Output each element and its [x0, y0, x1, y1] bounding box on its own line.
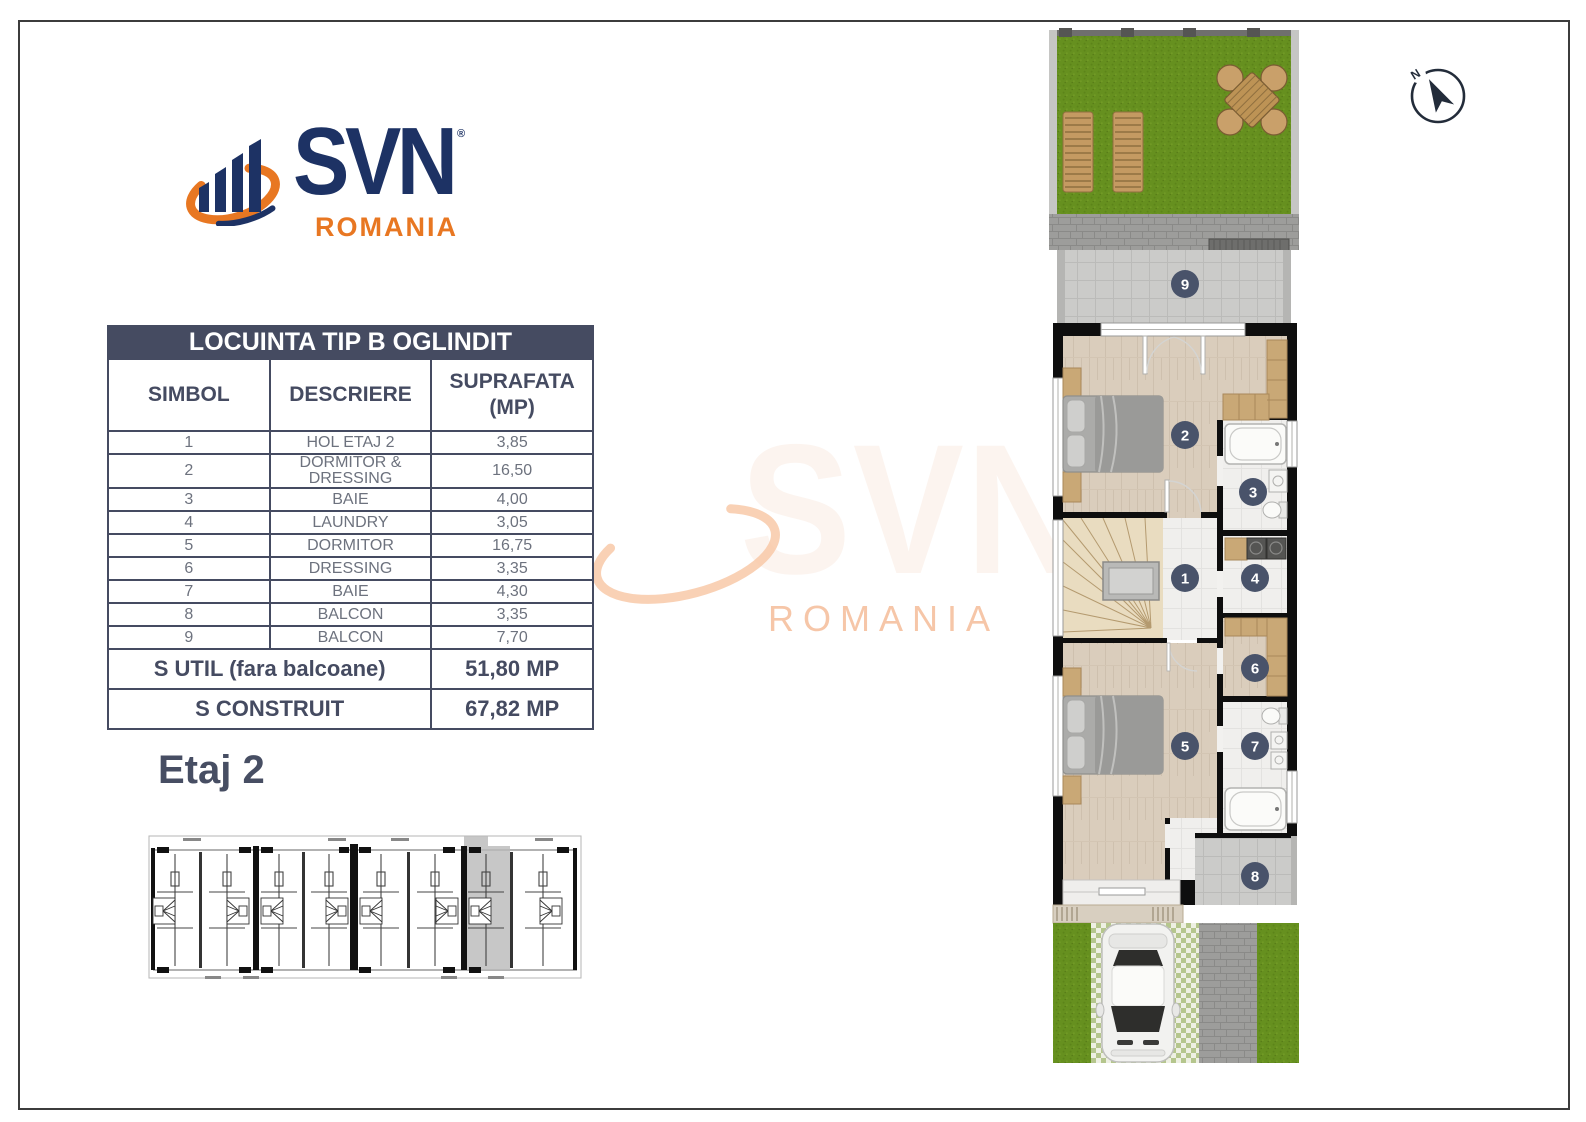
column-header-descriere: DESCRIERE [270, 359, 432, 431]
cell-simbol: 7 [108, 580, 270, 603]
total-util-value: 51,80 MP [431, 649, 593, 689]
cell-descriere: DORMITOR [270, 534, 432, 557]
cell-simbol: 9 [108, 626, 270, 649]
cell-simbol: 4 [108, 511, 270, 534]
cell-descriere: BALCON [270, 626, 432, 649]
cell-suprafata: 16,75 [431, 534, 593, 557]
column-header-suprafata-line2: (MP) [432, 395, 592, 421]
cell-suprafata: 7,70 [431, 626, 593, 649]
area-table: LOCUINTA TIP B OGLINDIT SIMBOL DESCRIERE… [107, 325, 594, 730]
cell-suprafata: 4,30 [431, 580, 593, 603]
staircase [1063, 518, 1163, 640]
cell-descriere: DRESSING [270, 557, 432, 580]
entrance [1063, 880, 1180, 905]
room-label-text: 8 [1251, 869, 1259, 886]
total-util-label: S UTIL (fara balcoane) [108, 649, 431, 689]
svn-logo-mark-icon [185, 116, 305, 226]
building-overview-plan [143, 820, 587, 992]
sun-lounger [1113, 112, 1143, 192]
table-header-row: SIMBOL DESCRIERE SUPRAFATA (MP) [108, 359, 593, 431]
cell-simbol: 3 [108, 488, 270, 511]
cell-descriere: DORMITOR & DRESSING [270, 454, 432, 488]
room-label-9: 9 [1171, 270, 1199, 298]
cell-descriere: BAIE [270, 580, 432, 603]
room-label-4: 4 [1241, 564, 1269, 592]
cell-suprafata: 3,05 [431, 511, 593, 534]
room-label-2: 2 [1171, 421, 1199, 449]
room-label-5: 5 [1171, 732, 1199, 760]
compass-arrow [1421, 74, 1454, 113]
logo-brand-text: SVN [293, 114, 454, 210]
room-label-6: 6 [1241, 654, 1269, 682]
room-label-1: 1 [1171, 564, 1199, 592]
cell-simbol: 2 [108, 454, 270, 488]
cell-simbol: 8 [108, 603, 270, 626]
table-title: LOCUINTA TIP B OGLINDIT [108, 326, 593, 359]
table-row: 4 LAUNDRY 3,05 [108, 511, 593, 534]
cell-descriere: BALCON [270, 603, 432, 626]
cell-descriere: LAUNDRY [270, 511, 432, 534]
svn-romania-logo: SVN ® ROMANIA [185, 112, 485, 252]
table-row: 2 DORMITOR & DRESSING 16,50 [108, 454, 593, 488]
table-row: 9 BALCON 7,70 [108, 626, 593, 649]
logo-region-text: ROMANIA [315, 212, 458, 243]
cell-simbol: 1 [108, 431, 270, 454]
car [1096, 924, 1180, 1062]
laundry-4-fixtures [1225, 538, 1286, 560]
north-compass-icon: N [1398, 52, 1474, 132]
room-label-text: 5 [1181, 739, 1189, 756]
cell-suprafata: 3,35 [431, 557, 593, 580]
cell-simbol: 6 [108, 557, 270, 580]
room-label-text: 4 [1251, 571, 1260, 588]
table-row: 1 HOL ETAJ 2 3,85 [108, 431, 593, 454]
total-construit-label: S CONSTRUIT [108, 689, 431, 729]
room-label-3: 3 [1239, 478, 1267, 506]
table-row: 6 DRESSING 3,35 [108, 557, 593, 580]
total-row-util: S UTIL (fara balcoane) 51,80 MP [108, 649, 593, 689]
column-header-suprafata-line1: SUPRAFATA [432, 369, 592, 395]
total-row-construit: S CONSTRUIT 67,82 MP [108, 689, 593, 729]
registered-mark: ® [457, 128, 465, 140]
cell-simbol: 5 [108, 534, 270, 557]
column-header-simbol: SIMBOL [108, 359, 270, 431]
cell-suprafata: 3,85 [431, 431, 593, 454]
room-label-text: 6 [1251, 661, 1259, 678]
column-header-suprafata: SUPRAFATA (MP) [431, 359, 593, 431]
floor-label: Etaj 2 [158, 748, 265, 793]
room-label-text: 9 [1181, 277, 1189, 294]
table-title-row: LOCUINTA TIP B OGLINDIT [108, 326, 593, 359]
room-label-8: 8 [1241, 862, 1269, 890]
table-row: 8 BALCON 3,35 [108, 603, 593, 626]
cell-descriere: HOL ETAJ 2 [270, 431, 432, 454]
table-row: 5 DORMITOR 16,75 [108, 534, 593, 557]
room-label-text: 2 [1181, 428, 1189, 445]
room-label-text: 3 [1249, 485, 1257, 502]
driveway [1053, 923, 1299, 1063]
porch [1053, 905, 1183, 923]
room-label-text: 1 [1181, 571, 1189, 588]
table-row: 3 BAIE 4,00 [108, 488, 593, 511]
room-label-7: 7 [1241, 732, 1269, 760]
table-row: 7 BAIE 4,30 [108, 580, 593, 603]
sun-lounger [1063, 112, 1093, 192]
cell-suprafata: 4,00 [431, 488, 593, 511]
room-label-text: 7 [1251, 739, 1259, 756]
total-construit-value: 67,82 MP [431, 689, 593, 729]
cell-suprafata: 3,35 [431, 603, 593, 626]
terrace-table-set [1217, 65, 1287, 135]
cell-descriere: BAIE [270, 488, 432, 511]
floor-plan: 9 2 3 1 4 6 5 7 [1041, 28, 1307, 1063]
cell-suprafata: 16,50 [431, 454, 593, 488]
